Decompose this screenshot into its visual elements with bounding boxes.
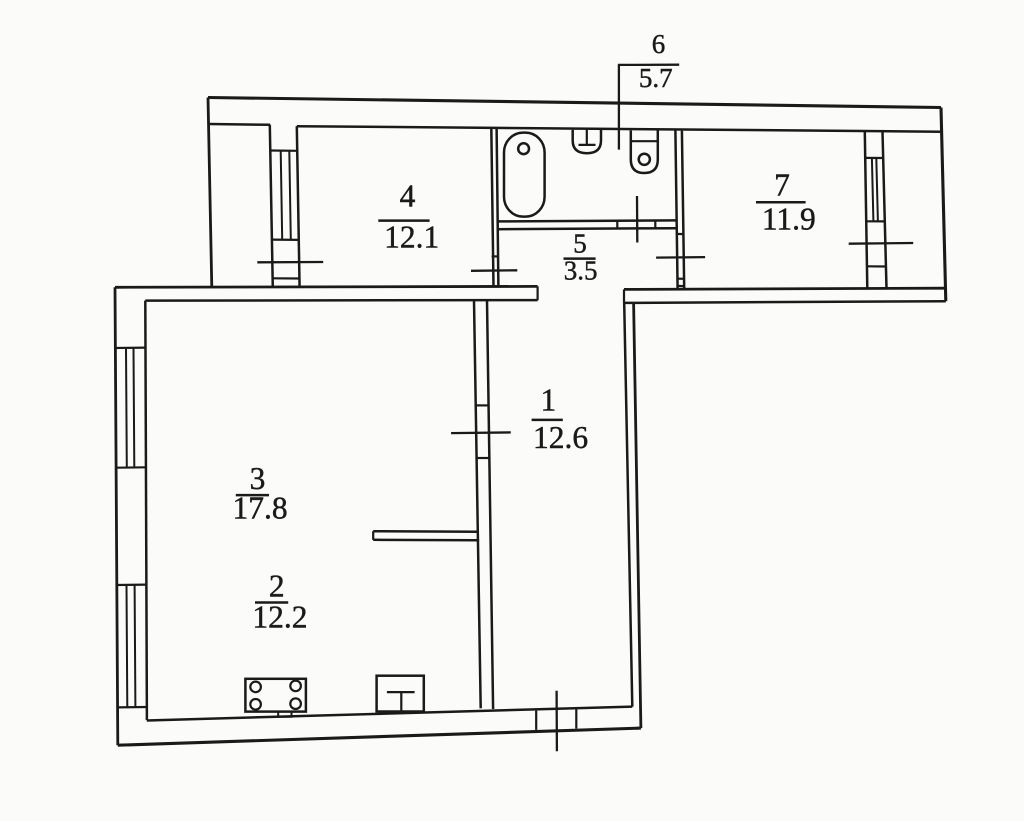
svg-text:12.6: 12.6 (533, 420, 588, 455)
svg-text:12.1: 12.1 (384, 220, 439, 255)
svg-text:11.9: 11.9 (762, 202, 816, 237)
svg-text:1: 1 (541, 382, 557, 417)
svg-text:6: 6 (652, 29, 666, 59)
svg-text:5.7: 5.7 (639, 63, 673, 93)
svg-text:12.2: 12.2 (252, 599, 307, 634)
svg-text:7: 7 (774, 167, 790, 202)
svg-text:4: 4 (400, 179, 416, 214)
svg-text:5: 5 (573, 229, 587, 259)
svg-text:3.5: 3.5 (564, 256, 598, 286)
svg-text:17.8: 17.8 (233, 491, 288, 526)
